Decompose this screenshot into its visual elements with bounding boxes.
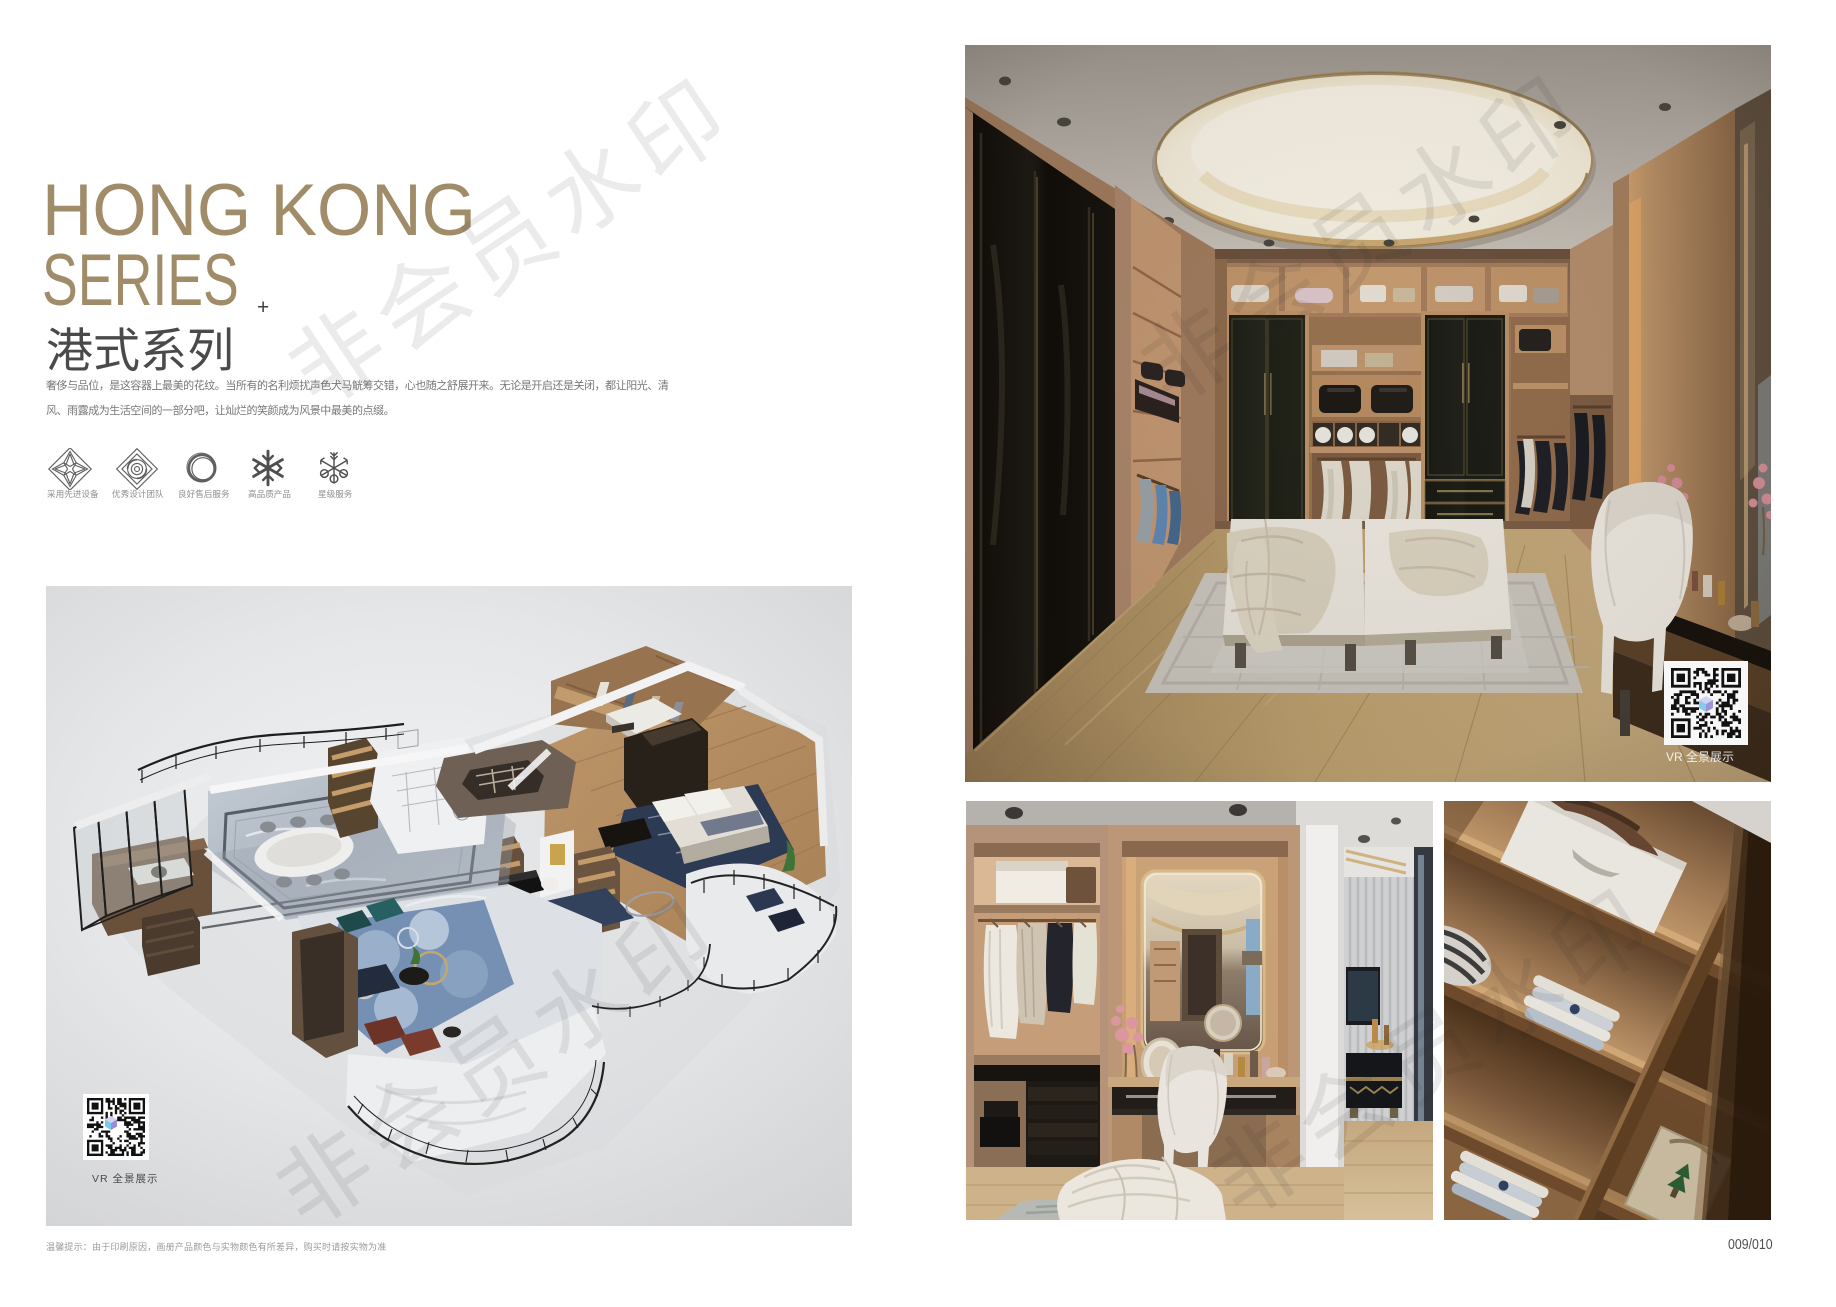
svg-text:VR 全景展示: VR 全景展示 — [1666, 749, 1734, 764]
svg-text:VR 全景展示: VR 全景展示 — [92, 1172, 159, 1185]
